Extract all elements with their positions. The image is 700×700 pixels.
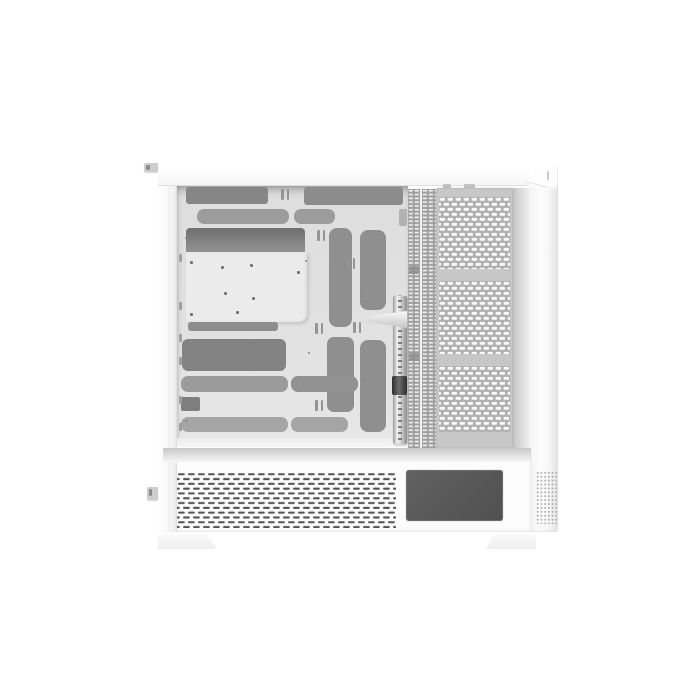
vertical-cable-cutout	[360, 230, 386, 310]
front-panel-seam	[168, 186, 169, 532]
pci-slot-strip	[408, 189, 420, 448]
case-foot-left	[158, 534, 216, 549]
cable-tie-slot	[315, 323, 323, 334]
panel-hinge-detail	[399, 209, 407, 226]
hdd-cage-cutout	[182, 339, 286, 371]
rear-dot-vent	[536, 471, 557, 524]
tab-notch	[149, 489, 152, 496]
cable-tie-slot	[317, 230, 325, 241]
psu-shroud-top-shadow	[163, 448, 531, 462]
cable-cutout-row	[291, 376, 358, 392]
cable-cutout-row	[291, 417, 348, 432]
cable-cutout-row	[181, 417, 288, 432]
screw-hole	[360, 295, 362, 297]
cable-tie-slot	[315, 400, 323, 411]
case-foot-right	[486, 534, 536, 549]
standoff-hole	[190, 261, 193, 264]
standoff-hole	[236, 311, 239, 314]
mount-slot	[179, 334, 182, 342]
standoff-hole	[250, 264, 253, 267]
rear-inner-wall	[513, 188, 529, 448]
thumbscrew-plate	[409, 353, 419, 361]
cable-tie-slot	[353, 322, 361, 333]
standoff-hole	[252, 297, 255, 300]
mesh-exhaust-panel	[436, 188, 513, 448]
screw-hole	[362, 380, 364, 382]
mount-slot	[179, 396, 182, 404]
mount-slot	[179, 302, 182, 310]
vertical-cable-cutout	[327, 337, 354, 412]
mount-slot	[179, 423, 182, 431]
pci-slot-strip	[422, 189, 436, 448]
cable-grommet-cutout	[197, 209, 289, 224]
mesh-fan-section	[439, 281, 510, 354]
top-front-tab	[144, 163, 158, 172]
standoff-hole	[221, 266, 224, 269]
cable-tie-slot	[281, 189, 289, 200]
chamber-floor	[177, 438, 408, 447]
standoff-hole	[297, 271, 300, 274]
screw-hole	[185, 420, 187, 422]
motherboard-tray	[186, 252, 307, 322]
cpu-cooler-cutout	[186, 228, 305, 254]
mesh-fan-section	[439, 366, 510, 432]
product-photo-canvas	[0, 0, 700, 700]
shroud-vent-field	[177, 472, 396, 528]
cable-grommet-cutout	[294, 209, 335, 224]
cable-tie-slot	[347, 258, 355, 269]
top-vent-cutout	[304, 187, 403, 205]
top-panel	[158, 167, 558, 186]
tab-notch	[146, 165, 150, 170]
small-cutout	[181, 397, 200, 411]
shroud-rear-seam	[531, 455, 532, 532]
thumbscrew-plate	[409, 266, 419, 274]
rear-seam-mark	[547, 171, 549, 180]
vertical-cable-cutout	[360, 340, 386, 432]
standoff-hole	[224, 292, 227, 295]
screw-hole	[308, 352, 310, 354]
vertical-cable-cutout	[329, 228, 352, 327]
mesh-fan-section	[439, 197, 510, 269]
shroud-window	[406, 470, 503, 521]
bracket-lock-knob	[392, 376, 407, 395]
mount-slot	[179, 254, 182, 262]
mount-slot	[179, 357, 182, 365]
standoff-hole	[190, 313, 193, 316]
tray-bottom-slot	[188, 322, 278, 331]
cable-cutout-row	[181, 376, 288, 392]
screw-hole	[185, 237, 187, 239]
top-vent-cutout	[186, 187, 268, 204]
side-panel-release-tab	[147, 487, 158, 500]
screw-hole	[305, 260, 307, 262]
